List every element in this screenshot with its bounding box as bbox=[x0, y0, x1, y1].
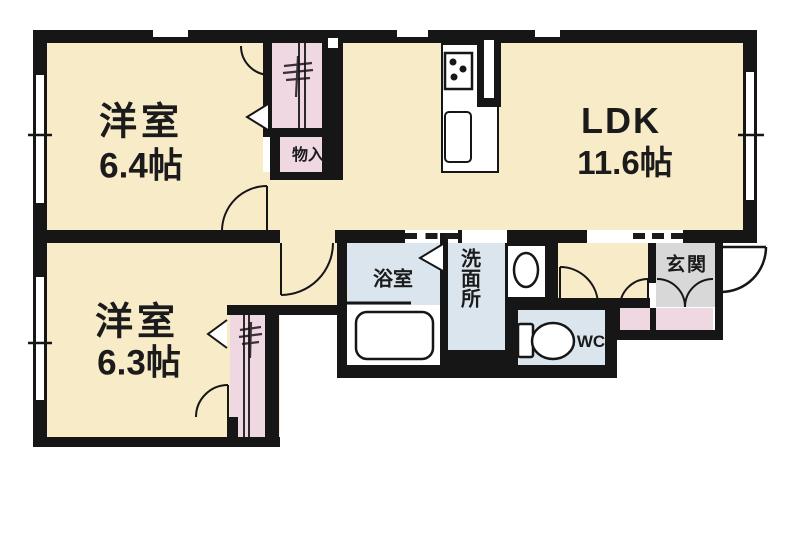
door-swing-arc-closet2 bbox=[196, 385, 228, 417]
bathtub-icon bbox=[356, 312, 433, 359]
burner-icon bbox=[450, 59, 457, 66]
hanger-rod-icon-closet1 bbox=[283, 56, 313, 97]
door-swing-arc-west2 bbox=[281, 243, 333, 295]
folding-door-icon-closet1 bbox=[247, 104, 268, 130]
entry-door-swing-arc bbox=[721, 247, 766, 292]
closet2-track-lines bbox=[244, 315, 249, 437]
folding-door-icon-bath bbox=[420, 244, 443, 271]
room-area-west2: 6.3帖 bbox=[97, 335, 181, 386]
room-label-wc: WC bbox=[577, 332, 605, 352]
toilet-bowl-icon bbox=[532, 323, 574, 359]
washbasin-icon bbox=[514, 253, 538, 287]
toilet-tank-icon bbox=[518, 324, 533, 357]
room-label-washroom: 洗面所 bbox=[457, 248, 480, 308]
door-swing-arc-closet1 bbox=[241, 46, 270, 75]
shoe-cabinet-doors-arcs bbox=[657, 279, 713, 307]
room-area-west1: 6.4帖 bbox=[99, 138, 183, 189]
room-area-ldk: 11.6帖 bbox=[577, 136, 672, 184]
sink-icon bbox=[445, 112, 471, 162]
folding-door-icon-closet2 bbox=[208, 320, 227, 348]
closet1-track-lines bbox=[299, 43, 305, 128]
room-label-bath: 浴室 bbox=[373, 263, 413, 292]
burner-icon bbox=[451, 74, 458, 81]
room-label-entrance: 玄関 bbox=[666, 250, 708, 277]
burner-icon bbox=[460, 66, 467, 73]
hanger-rod-icon-closet2 bbox=[239, 322, 262, 358]
floorplan-canvas: 洋室 6.4帖 LDK 11.6帖 洋室 6.3帖 浴室 洗面所 WC 玄関 物… bbox=[0, 0, 800, 540]
door-swing-arc-west1 bbox=[222, 186, 267, 231]
room-label-storage: 物入 bbox=[292, 141, 324, 165]
stove-icon bbox=[445, 53, 472, 89]
door-swing-arc-entrance-hall bbox=[620, 279, 648, 307]
door-swing-arc-hallway bbox=[560, 267, 598, 305]
